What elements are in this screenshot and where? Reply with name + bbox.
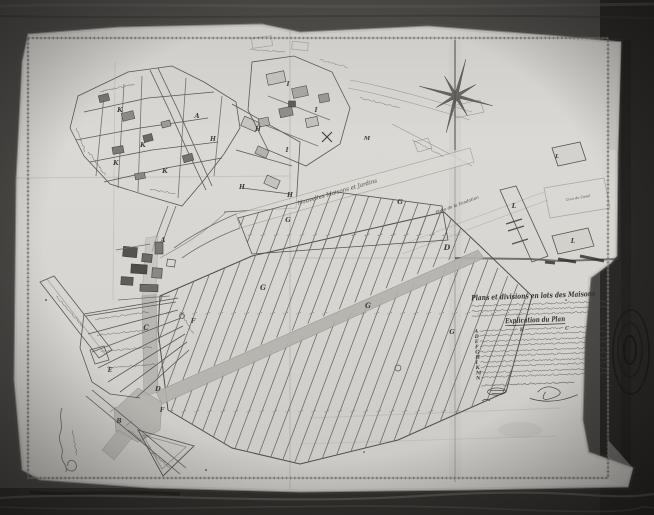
photograph-of-cadastral-map: KKKKAAHHHHIIIMGGGGGDDCFFEBLLLNouvelles M… xyxy=(0,0,654,515)
photo-vignette xyxy=(0,0,654,515)
